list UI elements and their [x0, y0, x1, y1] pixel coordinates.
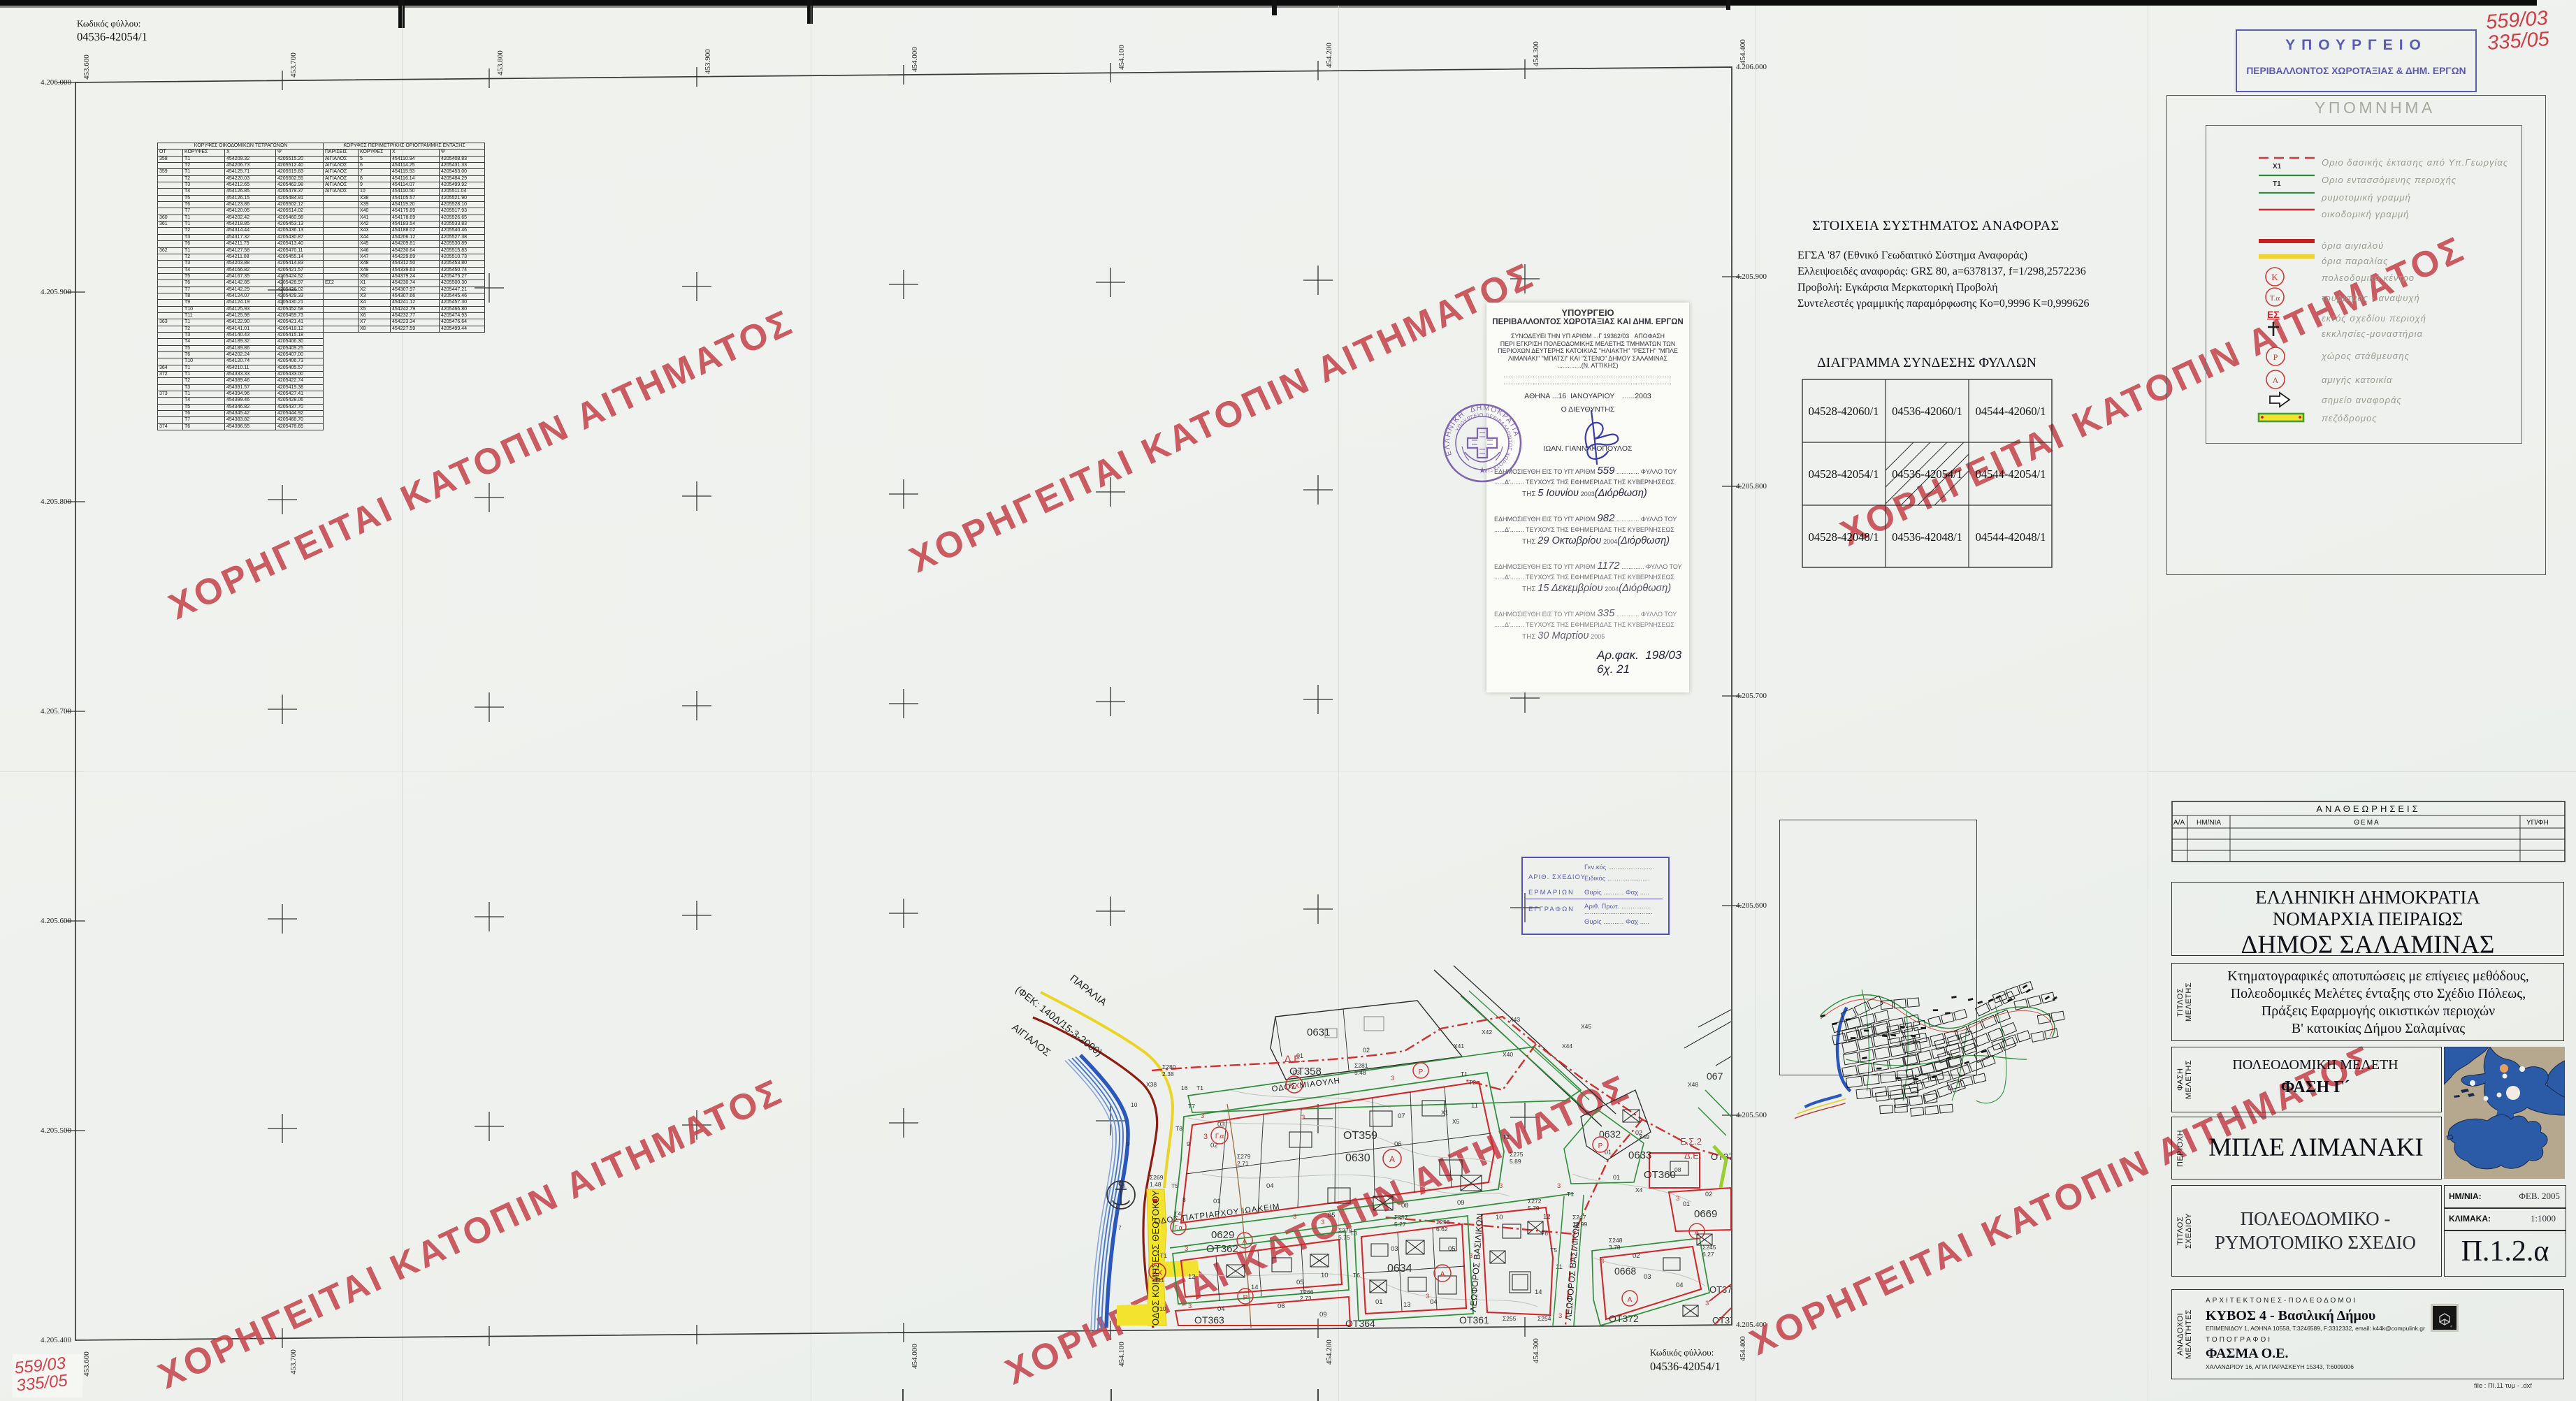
svg-text:ΟΤ362: ΟΤ362	[1206, 1243, 1238, 1255]
svg-text:Τ2: Τ2	[1503, 1133, 1510, 1140]
svg-text:0632: 0632	[1599, 1128, 1621, 1140]
svg-text:04528-42060/1: 04528-42060/1	[1809, 405, 1879, 418]
svg-text:A: A	[1440, 1270, 1445, 1279]
svg-text:4: 4	[2450, 1325, 2452, 1329]
svg-text:ΟΤ372: ΟΤ372	[1609, 1313, 1639, 1324]
svg-text:06: 06	[1394, 1140, 1402, 1148]
svg-text:01: 01	[1375, 1298, 1383, 1306]
svg-text:Τ6: Τ6	[1353, 1272, 1360, 1279]
svg-text:01: 01	[1613, 1174, 1620, 1181]
svg-text:05: 05	[1448, 1245, 1456, 1253]
svg-text:04544-42048/1: 04544-42048/1	[1976, 530, 2046, 544]
svg-text:0668: 0668	[1614, 1265, 1636, 1277]
svg-text:Σ281: Σ281	[1354, 1062, 1368, 1069]
svg-text:Τ8: Τ8	[1175, 1125, 1182, 1132]
svg-text:3: 3	[1201, 1112, 1204, 1120]
svg-text:ΑΝΑΘΕΩΡΗΣΕΙΣ: ΑΝΑΘΕΩΡΗΣΕΙΣ	[2316, 804, 2420, 814]
svg-text:3: 3	[1185, 1245, 1188, 1253]
svg-text:P: P	[1598, 1142, 1603, 1150]
svg-text:Τ6: Τ6	[1541, 1230, 1548, 1237]
svg-text:Σ255: Σ255	[1503, 1315, 1517, 1322]
svg-text:ΟΤ361: ΟΤ361	[1459, 1314, 1489, 1326]
svg-text:Τ1: Τ1	[1567, 1191, 1574, 1198]
svg-text:Σ269: Σ269	[1150, 1174, 1164, 1181]
svg-text:11: 11	[1471, 1102, 1478, 1110]
svg-text:A: A	[2273, 375, 2279, 385]
svg-text:06: 06	[1278, 1302, 1285, 1310]
svg-text:3.78: 3.78	[1609, 1244, 1621, 1251]
svg-text:ΛΕΩΦΟΡΟΣ ΒΑΣΙΛΙΚΩΝ: ΛΕΩΦΟΡΟΣ ΒΑΣΙΛΙΚΩΝ	[1563, 1221, 1582, 1321]
svg-text:11: 11	[1556, 1263, 1563, 1271]
svg-text:03: 03	[1391, 1245, 1398, 1253]
svg-text:05: 05	[1328, 1212, 1336, 1219]
svg-text:5.89: 5.89	[1510, 1158, 1521, 1165]
svg-text:Σ280: Σ280	[1162, 1064, 1176, 1070]
svg-text:P: P	[1243, 1294, 1248, 1302]
svg-text:T1: T1	[2273, 180, 2281, 188]
svg-text:Α/Α: Α/Α	[2173, 819, 2185, 827]
svg-text:X4: X4	[1635, 1186, 1643, 1193]
svg-text:X44: X44	[1562, 1043, 1572, 1050]
svg-text:8: 8	[1182, 1196, 1186, 1203]
svg-text:Τ4: Τ4	[1174, 1210, 1181, 1217]
svg-text:Σ278: Σ278	[1338, 1227, 1352, 1234]
svg-text:09: 09	[1319, 1311, 1327, 1319]
svg-text:X42: X42	[1482, 1029, 1492, 1036]
svg-text:3: 3	[1203, 1133, 1208, 1141]
svg-text:P: P	[2273, 352, 2278, 362]
svg-text:0629: 0629	[1211, 1229, 1234, 1241]
svg-text:0669: 0669	[1694, 1208, 1717, 1220]
svg-text:Σ247: Σ247	[1572, 1214, 1586, 1221]
svg-text:9: 9	[1187, 1140, 1190, 1147]
svg-text:5.75: 5.75	[1338, 1234, 1350, 1241]
svg-text:Τ11: Τ11	[1155, 1277, 1164, 1284]
svg-text:09: 09	[1457, 1199, 1465, 1207]
svg-text:3: 3	[1600, 1258, 1604, 1265]
svg-text:04: 04	[1266, 1182, 1274, 1190]
svg-text:ΟΤ373: ΟΤ373	[1709, 1284, 1734, 1295]
svg-text:A: A	[1389, 1154, 1395, 1164]
svg-text:02: 02	[1633, 1252, 1640, 1260]
svg-text:16: 16	[1181, 1084, 1188, 1091]
svg-text:X1: X1	[2273, 163, 2282, 170]
svg-text:Σ2792.71: Σ2792.71	[1237, 1153, 1251, 1167]
svg-text:0634: 0634	[1387, 1263, 1412, 1275]
svg-text:X5: X5	[1452, 1118, 1460, 1125]
svg-text:10: 10	[1321, 1272, 1329, 1279]
svg-text:01: 01	[1213, 1198, 1221, 1205]
svg-text:14: 14	[1251, 1284, 1259, 1291]
svg-text:X45: X45	[1581, 1023, 1591, 1030]
svg-text:04: 04	[1217, 1305, 1225, 1313]
svg-text:Σ275: Σ275	[1510, 1151, 1524, 1158]
svg-text:12.99: 12.99	[1572, 1221, 1588, 1228]
svg-text:04544-42060/1: 04544-42060/1	[1976, 405, 2046, 418]
svg-text:6.27: 6.27	[1702, 1251, 1714, 1258]
svg-text:7: 7	[1118, 1224, 1122, 1231]
svg-text:3: 3	[1293, 1213, 1296, 1221]
svg-text:067: 067	[1707, 1070, 1723, 1082]
svg-text:3: 3	[1469, 1252, 1472, 1260]
svg-text:X43: X43	[1510, 1016, 1520, 1023]
svg-text:0633: 0633	[1628, 1149, 1651, 1161]
svg-text:12: 12	[1188, 1273, 1196, 1281]
svg-text:K: K	[2271, 272, 2278, 282]
svg-text:10: 10	[1496, 1214, 1503, 1221]
svg-text:10: 10	[1131, 1101, 1138, 1108]
svg-text:X1: X1	[1441, 1109, 1449, 1116]
svg-text:Σ248: Σ248	[1609, 1237, 1623, 1244]
svg-text:04536-42048/1: 04536-42048/1	[1892, 530, 1962, 544]
svg-text:Τ2: Τ2	[1469, 1079, 1476, 1086]
svg-text:04528-42048/1: 04528-42048/1	[1809, 530, 1879, 544]
svg-text:3: 3	[1546, 1214, 1549, 1221]
svg-text:08: 08	[1674, 1166, 1681, 1173]
svg-text:X40: X40	[1503, 1051, 1513, 1058]
svg-text:P: P	[1419, 1068, 1424, 1076]
svg-text:ΥΠ/ΦΗ: ΥΠ/ΦΗ	[2526, 819, 2549, 827]
svg-text:3: 3	[1499, 1182, 1503, 1190]
svg-text:3: 3	[1557, 1182, 1561, 1190]
svg-text:3: 3	[1426, 1293, 1429, 1300]
svg-text:ΟΔΟΣ ΠΑΤΡΙΑΡΧΟΥ ΙΩΑΚΕΙΜ: ΟΔΟΣ ΠΑΤΡΙΑΡΧΟΥ ΙΩΑΚΕΙΜ	[1154, 1203, 1280, 1226]
svg-text:ΠΑΡΑΛΙΑ: ΠΑΡΑΛΙΑ	[1068, 973, 1109, 1009]
svg-text:Σ257: Σ257	[1394, 1214, 1408, 1221]
svg-text:Τ1: Τ1	[1461, 1070, 1468, 1077]
svg-text:★: ★	[1479, 465, 1486, 475]
svg-text:02: 02	[1705, 1191, 1712, 1198]
svg-text:04528-42054/1: 04528-42054/1	[1809, 467, 1879, 481]
svg-text:X49: X49	[1639, 1133, 1649, 1140]
svg-text:3: 3	[1301, 1114, 1305, 1121]
svg-text:Τ10: Τ10	[1156, 1305, 1166, 1312]
svg-text:ΕΣ: ΕΣ	[2267, 309, 2280, 320]
svg-text:0630: 0630	[1345, 1152, 1370, 1164]
svg-text:X48: X48	[1688, 1081, 1698, 1088]
svg-text:Τ5: Τ5	[1171, 1182, 1178, 1189]
svg-text:04: 04	[1676, 1282, 1684, 1289]
svg-text:04544-42054/1: 04544-42054/1	[1976, 467, 2046, 481]
svg-text:Δ.Ε.: Δ.Ε.	[1285, 1053, 1303, 1064]
svg-text:A: A	[1243, 1238, 1247, 1246]
svg-text:X38: X38	[1146, 1081, 1157, 1088]
svg-text:9: 9	[1127, 1140, 1130, 1147]
svg-text:Σ256: Σ256	[1436, 1219, 1450, 1226]
svg-text:Γ.α: Γ.α	[1174, 1224, 1182, 1231]
svg-text:Τ7: Τ7	[1188, 1103, 1195, 1110]
svg-text:Γ.α: Γ.α	[1215, 1133, 1224, 1140]
svg-text:3: 3	[1321, 1219, 1324, 1226]
svg-text:14: 14	[1535, 1289, 1542, 1296]
svg-text:ΟΤ363: ΟΤ363	[1194, 1314, 1224, 1326]
svg-text:3: 3	[1558, 1312, 1562, 1320]
svg-text:3: 3	[1676, 1195, 1679, 1203]
svg-text:5.79: 5.79	[1528, 1205, 1540, 1212]
svg-text:Τ5: Τ5	[1550, 1247, 1557, 1254]
svg-text:04536-42060/1: 04536-42060/1	[1892, 405, 1962, 418]
svg-text:8: 8	[1122, 1182, 1125, 1189]
svg-text:3: 3	[1188, 1302, 1192, 1310]
svg-text:Τ1: Τ1	[1196, 1084, 1203, 1091]
svg-text:X41: X41	[1454, 1043, 1464, 1050]
svg-text:04536-42054/1: 04536-42054/1	[1892, 467, 1962, 481]
svg-text:5.48: 5.48	[1354, 1069, 1366, 1076]
svg-text:Τ1: Τ1	[1160, 1252, 1167, 1259]
svg-text:Ε.Σ.2: Ε.Σ.2	[1680, 1136, 1702, 1147]
svg-text:5.27: 5.27	[1394, 1221, 1406, 1228]
svg-text:Σ272: Σ272	[1528, 1198, 1542, 1205]
svg-text:A: A	[1628, 1296, 1633, 1304]
svg-text:08: 08	[1401, 1202, 1409, 1210]
svg-text:07: 07	[1398, 1112, 1405, 1120]
svg-text:01: 01	[1683, 1200, 1690, 1207]
svg-text:05: 05	[1296, 1279, 1304, 1286]
svg-text:04: 04	[1430, 1298, 1438, 1306]
svg-text:ΑΙΓΙΑΛΟΣ: ΑΙΓΙΑΛΟΣ	[1010, 1022, 1052, 1059]
svg-text:3: 3	[1705, 1300, 1709, 1307]
svg-text:Τ.α: Τ.α	[2270, 294, 2280, 303]
svg-text:1.48: 1.48	[1150, 1181, 1162, 1188]
svg-text:02: 02	[1363, 1047, 1370, 1054]
svg-text:3: 3	[1391, 1075, 1394, 1082]
svg-text:Σ254: Σ254	[1537, 1315, 1551, 1322]
svg-text:2.38: 2.38	[1162, 1070, 1174, 1077]
svg-text:6.62: 6.62	[1436, 1226, 1448, 1233]
svg-text:13: 13	[1403, 1301, 1411, 1309]
svg-text:ΗΜ/ΝΙΑ: ΗΜ/ΝΙΑ	[2197, 819, 2221, 827]
svg-text:ΘΕΜΑ: ΘΕΜΑ	[2354, 819, 2380, 827]
svg-text:Σ245: Σ245	[1702, 1244, 1716, 1251]
svg-text:Δ.Ε.: Δ.Ε.	[1684, 1150, 1702, 1161]
svg-text:03: 03	[1644, 1273, 1651, 1281]
svg-text:ΟΤ359: ΟΤ359	[1343, 1130, 1377, 1142]
